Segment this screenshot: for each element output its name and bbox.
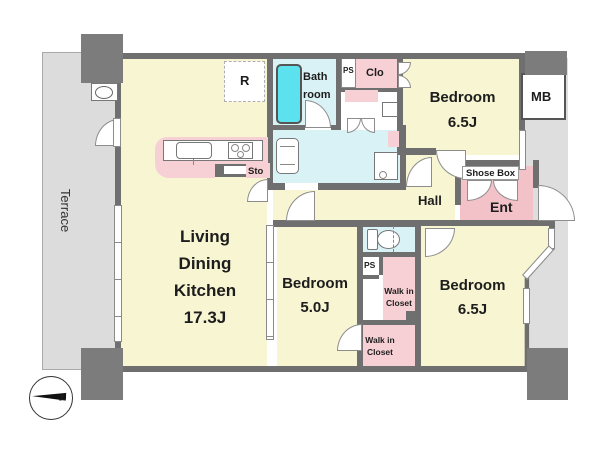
ldk-label-line1: Living bbox=[170, 228, 240, 245]
ps-bottom-label: PS bbox=[364, 261, 375, 270]
vanity-detail bbox=[280, 146, 295, 147]
sliding-partition-ldk-bedroom bbox=[266, 225, 274, 340]
vanity-detail2 bbox=[280, 164, 295, 165]
terrace-faucet-basin bbox=[95, 86, 113, 99]
pillar-top-left bbox=[81, 34, 123, 83]
clo-label: Clo bbox=[366, 68, 384, 79]
wall-bedroom-ne-bottom-a bbox=[403, 148, 436, 155]
meter-box-label: MB bbox=[531, 90, 551, 103]
pillar-bottom-left bbox=[81, 348, 123, 400]
toilet-bowl bbox=[377, 230, 400, 249]
window-bedroom-ne bbox=[519, 130, 526, 170]
wic-upper-line1: Walk in bbox=[381, 287, 417, 296]
shoebox-label: Shose Box bbox=[466, 169, 515, 179]
bedroom-sw-label: Bedroom bbox=[275, 276, 355, 291]
wall-bottom bbox=[115, 366, 535, 372]
ldk-label-line3: Kitchen bbox=[165, 282, 245, 299]
wic-corner-block bbox=[406, 311, 415, 320]
kitchen-sink bbox=[176, 142, 212, 159]
bedroom-ne-label: Bedroom bbox=[420, 90, 505, 105]
ps-top-label: PS bbox=[343, 67, 354, 75]
bathtub bbox=[276, 64, 302, 124]
kitchen-faucet bbox=[193, 159, 194, 165]
refrigerator-label: R bbox=[240, 74, 249, 87]
bedroom-se-size: 6.5J bbox=[430, 302, 515, 317]
ldk-size-label: 17.3J bbox=[170, 309, 240, 326]
entrance-door bbox=[538, 185, 575, 221]
wall-left-b bbox=[115, 146, 121, 205]
hall-label: Hall bbox=[418, 194, 442, 207]
stove-burner-3 bbox=[237, 151, 244, 158]
wall-ps2-right bbox=[379, 257, 383, 275]
wall-washroom-right bbox=[400, 125, 406, 190]
wic-lower-line1: Walk in bbox=[361, 336, 399, 345]
washing-machine-knob bbox=[379, 171, 387, 179]
window-bedroom-se-right bbox=[523, 288, 530, 324]
wall-top bbox=[115, 53, 525, 59]
wall-hall-bottom bbox=[273, 220, 421, 227]
floor-plan: Terrace Sto bbox=[0, 0, 600, 450]
terrace-label: Terrace bbox=[59, 189, 72, 232]
wall-wic-divider bbox=[363, 320, 415, 325]
washroom-counter bbox=[388, 131, 399, 147]
stove-burner-2 bbox=[242, 144, 250, 152]
bedroom-ne-size: 6.5J bbox=[420, 115, 505, 130]
ldk-label-line2: Dining bbox=[170, 255, 240, 272]
pillar-top-right bbox=[525, 51, 567, 75]
toilet-door-dashed bbox=[393, 226, 394, 252]
ent-label: Ent bbox=[490, 200, 513, 214]
terrace-door-leaf bbox=[113, 118, 121, 147]
storage-label: Sto bbox=[248, 167, 263, 177]
wall-bath-bottom-a bbox=[273, 125, 305, 130]
room-bedroom-ne bbox=[403, 59, 519, 155]
linen-box bbox=[382, 102, 398, 117]
wall-bath-bottom-b bbox=[331, 125, 341, 130]
wic-upper-line2: Closet bbox=[381, 299, 417, 308]
bedroom-se-label: Bedroom bbox=[430, 278, 515, 293]
kitchen-counter-leg bbox=[155, 158, 215, 178]
bathroom-label-line1: Bath bbox=[303, 72, 327, 83]
room-wic-lower bbox=[363, 325, 415, 366]
wall-ps2-bottom bbox=[363, 275, 379, 279]
window-ldk-terrace bbox=[114, 205, 122, 342]
bathroom-label-line2: room bbox=[303, 90, 331, 101]
linen-shelf bbox=[345, 90, 378, 102]
wall-ent-right bbox=[533, 160, 539, 188]
pillar-bottom-right bbox=[527, 348, 568, 400]
wall-washroom-bottom-a bbox=[267, 183, 285, 190]
vanity-sink bbox=[276, 138, 299, 174]
wall-toilet-bottom bbox=[363, 252, 415, 257]
bedroom-sw-size: 5.0J bbox=[275, 300, 355, 315]
wic-lower-line2: Closet bbox=[361, 348, 399, 357]
wall-washroom-bottom-b bbox=[318, 183, 406, 190]
